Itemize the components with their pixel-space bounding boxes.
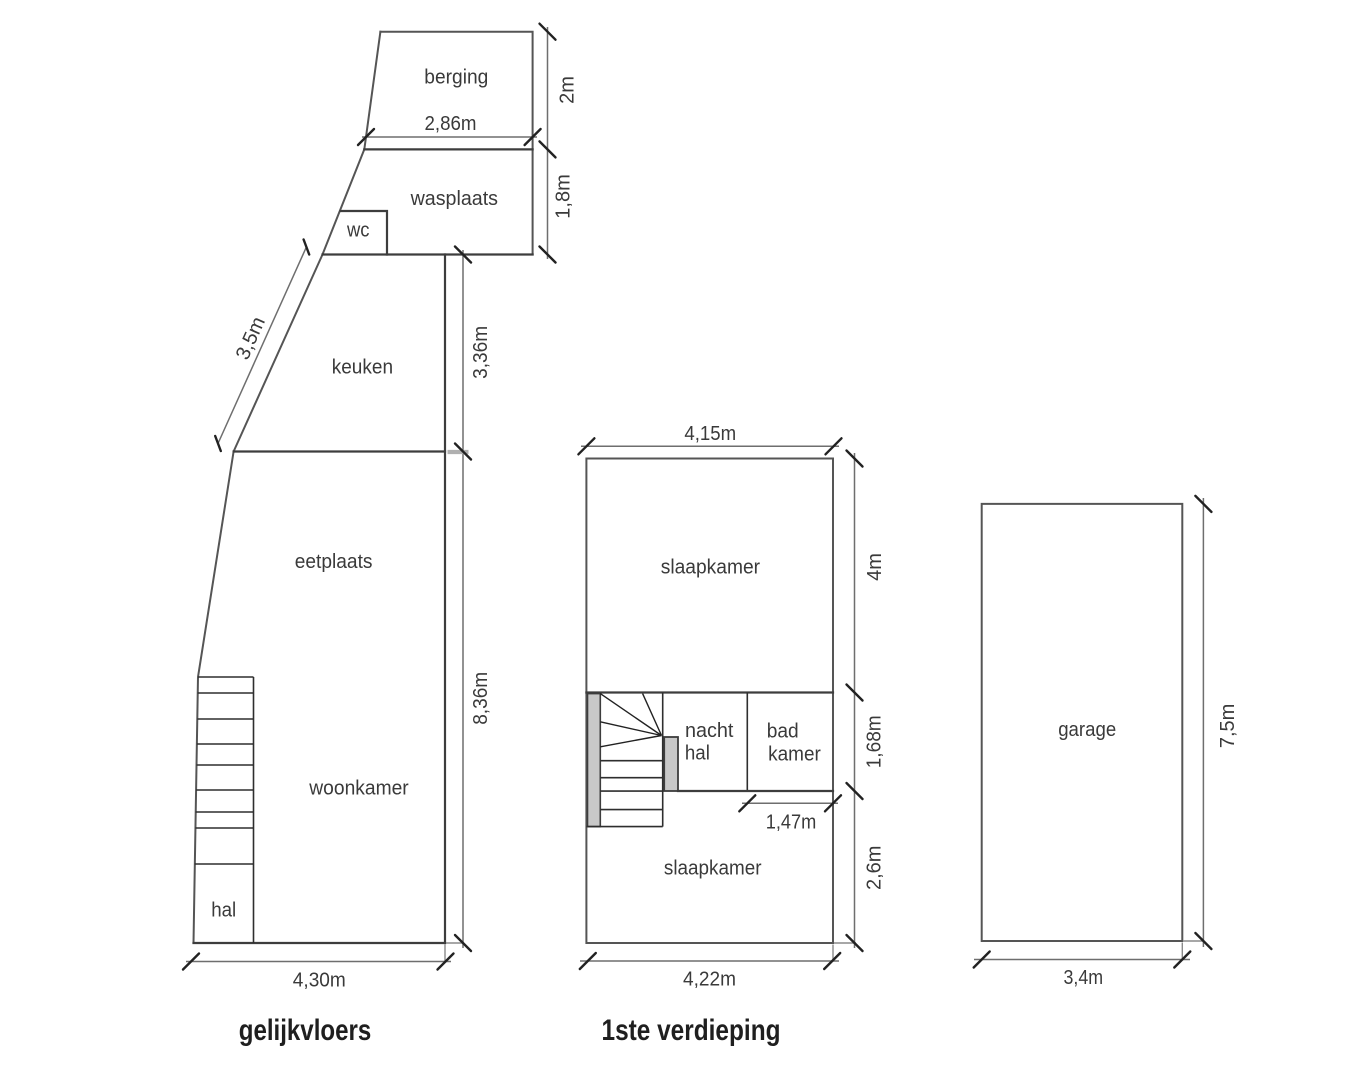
svg-text:kamer: kamer [768,744,821,766]
svg-text:bad: bad [767,721,799,743]
svg-text:berging: berging [424,67,488,89]
svg-text:hal: hal [685,743,710,765]
svg-text:slaapkamer: slaapkamer [661,557,761,579]
svg-text:hal: hal [211,900,236,922]
svg-text:slaapkamer: slaapkamer [664,858,762,880]
svg-text:8,36m: 8,36m [470,672,492,725]
svg-text:2,6m: 2,6m [863,846,885,890]
svg-text:3,4m: 3,4m [1064,967,1104,989]
svg-text:nacht: nacht [685,720,734,742]
svg-text:wc: wc [346,220,369,242]
svg-text:keuken: keuken [332,357,393,379]
svg-text:woonkamer: woonkamer [308,778,409,800]
svg-text:4,22m: 4,22m [683,969,736,991]
svg-text:garage: garage [1058,719,1116,741]
svg-text:4,15m: 4,15m [684,423,736,445]
svg-text:4m: 4m [864,553,886,581]
svg-text:2m: 2m [556,76,578,104]
svg-text:1ste verdieping: 1ste verdieping [602,1014,781,1047]
svg-text:1,47m: 1,47m [766,812,817,834]
svg-text:3,36m: 3,36m [470,326,492,379]
svg-text:1,8m: 1,8m [553,174,575,218]
svg-text:gelijkvloers: gelijkvloers [239,1014,372,1047]
svg-text:1,68m: 1,68m [863,715,885,768]
svg-text:7,5m: 7,5m [1217,704,1239,748]
svg-text:2,86m: 2,86m [425,113,477,135]
svg-text:4,30m: 4,30m [293,970,346,992]
svg-text:wasplaats: wasplaats [410,188,498,210]
svg-text:eetplaats: eetplaats [295,551,373,573]
